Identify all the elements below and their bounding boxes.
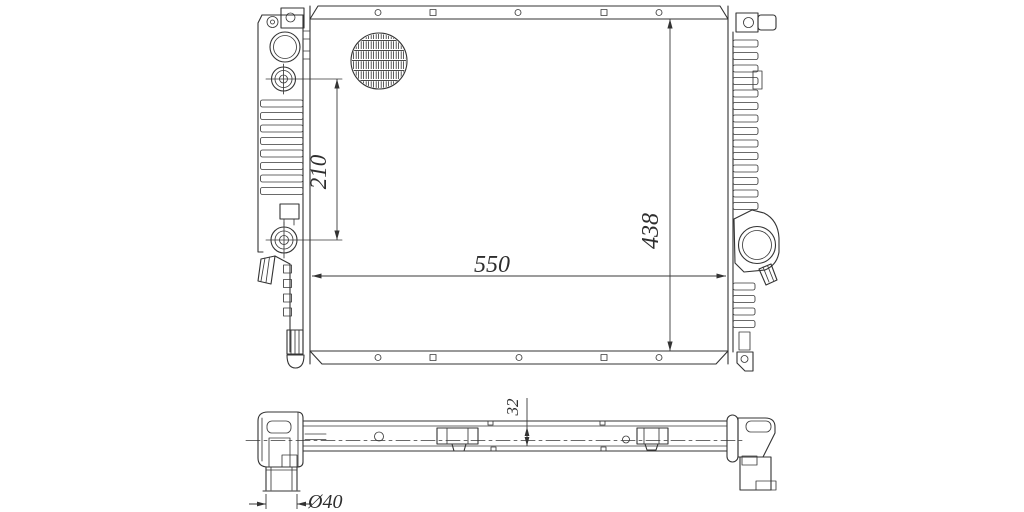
dimension-40-label: Ø40 — [307, 491, 342, 512]
dimension-438-label: 438 — [638, 213, 664, 249]
dimension-40: Ø40 — [249, 491, 342, 512]
filler-neck — [270, 32, 300, 62]
bar-hole-right — [623, 436, 630, 443]
left-spout — [258, 256, 275, 284]
dimension-550: 550 — [312, 252, 726, 279]
right-lower-cutout — [739, 332, 750, 350]
left-column-edge — [275, 256, 290, 352]
fastener-clip-2 — [637, 428, 668, 450]
dimension-438: 438 — [638, 19, 673, 351]
outlet-pipe-profile — [263, 467, 300, 491]
radiator-technical-drawing: 210 550 438 — [0, 0, 1024, 512]
left-tank-ribs — [261, 100, 304, 195]
left-tank-profile — [258, 412, 326, 467]
bottom-view: 32 Ø40 — [246, 398, 776, 512]
bar-hole-left — [375, 432, 384, 441]
front-view: 210 550 438 — [258, 6, 779, 371]
dimension-32: 32 — [503, 398, 529, 446]
right-mounting-foot — [737, 352, 753, 371]
right-spout — [759, 264, 777, 285]
right-tank-ribs-upper — [733, 40, 758, 210]
left-mounting-tab — [281, 8, 304, 28]
core-right-edge — [728, 6, 733, 364]
drawing-svg: 210 550 438 — [0, 0, 1024, 512]
core-profile-bar — [246, 421, 744, 451]
dimension-210-label: 210 — [306, 154, 331, 189]
right-tank-ribs-lower — [733, 283, 755, 328]
right-mounting-bracket — [736, 13, 776, 32]
dimension-550-label: 550 — [474, 252, 510, 278]
upper-port — [266, 64, 342, 94]
dimension-32-label: 32 — [503, 398, 522, 417]
core-top-band — [310, 6, 728, 19]
outlet-port — [734, 210, 779, 272]
fastener-clip-1 — [437, 428, 478, 451]
left-tank-tab-a — [303, 31, 310, 39]
core-fin-detail — [351, 33, 407, 89]
sensor-bracket — [280, 204, 299, 225]
dimension-210: 210 — [306, 79, 340, 240]
left-bolt-boss — [267, 17, 278, 28]
right-end-profile — [727, 415, 776, 490]
right-tank-tab — [753, 71, 762, 89]
left-tank-tab-b — [303, 51, 310, 59]
right-tank — [733, 13, 779, 371]
core-bottom-band — [310, 351, 728, 364]
lower-port — [266, 222, 342, 258]
